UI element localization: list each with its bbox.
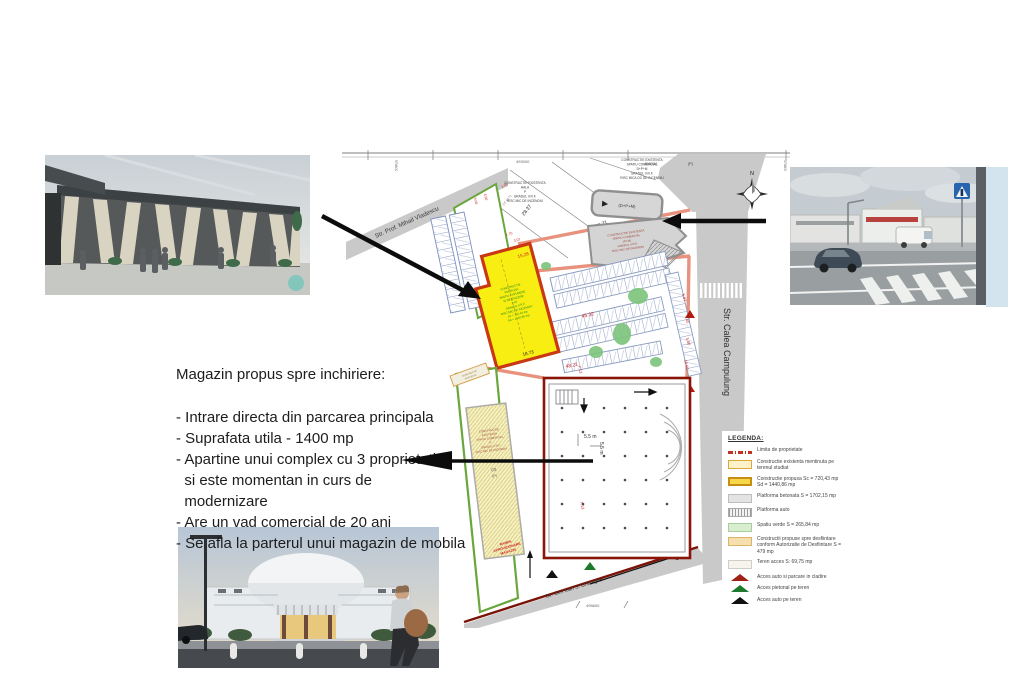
legend-label: Acces auto pe teren [757, 597, 801, 603]
facade-render-image [45, 155, 310, 295]
svg-text:7.13: 7.13 [577, 365, 584, 374]
svg-text:CONSTRUCTIE EXISTENTA: CONSTRUCTIE EXISTENTA [621, 158, 663, 162]
legend-row: Spatiu verde S = 265,84 mp [728, 522, 844, 532]
legend-swatch-property-line [728, 451, 752, 454]
legend-row: Limita de proprietate [728, 447, 844, 454]
street-label-campulung: Str. Calea Campulung [722, 308, 732, 396]
svg-text:D+P+M: D+P+M [637, 167, 648, 171]
north-label: N [750, 171, 754, 177]
svg-text:SPATIU COMERCIAL: SPATIU COMERCIAL [627, 163, 658, 167]
legend-swatch-proposed [728, 477, 752, 486]
legend-swatch-auto-parking-access [728, 574, 752, 581]
svg-text:10.60: 10.60 [683, 359, 690, 371]
watermark-circle [288, 275, 304, 291]
legend-swatch-greenspace [728, 523, 752, 532]
grid-coord: 574600 [394, 160, 398, 171]
dim-label: 5.5 m [598, 442, 604, 455]
legend-row: Platforma betonata S = 1702,15 mp [728, 493, 844, 503]
legend-row: Constructie existenta mentinuta pe teren… [728, 459, 844, 472]
legend-swatch-parking [728, 508, 752, 517]
legend-label: Limita de proprietate [757, 447, 803, 453]
main-store-parcel: 5.5 m 5.5 m [544, 378, 690, 578]
legend-label: Platforma auto [757, 507, 790, 513]
svg-text:RISC MIC/LOC DE INCENDIU: RISC MIC/LOC DE INCENDIU [620, 176, 664, 180]
legend-swatch-pedestrian-access [728, 585, 752, 592]
green-strip-west: CONSTRUCTIE EXISTENTA CONSTRUCTIE EXISTE… [450, 363, 524, 628]
existing-building-dpm: (D+P+M) [591, 190, 663, 220]
legend-label: Constructie existenta mentinuta pe teren… [757, 459, 844, 472]
facade-render-photo [45, 155, 310, 295]
legend-label: Constructii propuse spre desfiintare con… [757, 536, 844, 555]
legend-label: Spatiu verde S = 265,84 mp [757, 522, 819, 528]
legend-swatch-existing [728, 460, 752, 469]
legend-swatch-auto-access [728, 597, 752, 604]
foreground-pole [976, 167, 986, 305]
legend-title: LEGENDA: [728, 435, 844, 442]
svg-text:HALA: HALA [521, 186, 530, 190]
p-label: (P) [688, 162, 693, 166]
pedestrian-access-marker [584, 562, 596, 570]
grid-coord: 574800 [783, 160, 787, 171]
dim-label: 28.37 [521, 204, 534, 218]
legend-row: Constructii propuse spre desfiintare con… [728, 536, 844, 555]
svg-text:P: P [524, 190, 526, 194]
grid-coord: 495600 [586, 603, 600, 608]
slide-canvas: Magazin propus spre inchiriere: - Intrar… [0, 0, 1024, 682]
dim-label: 5.5 m [584, 434, 597, 440]
legend-row: Constructie propusa Sc = 720,43 mp Sd = … [728, 476, 844, 489]
legend-label: Platforma betonata S = 1702,15 mp [757, 493, 836, 499]
legend-swatch-demolition [728, 537, 752, 546]
svg-text:1.70: 1.70 [505, 231, 513, 237]
legend-row: Acces auto pe teren [728, 597, 844, 604]
legend-swatch-access-land [728, 560, 752, 569]
svg-text:GRADUL II R.F.: GRADUL II R.F. [631, 172, 653, 176]
legend-label: Teren acces S: 69,75 mp [757, 559, 812, 565]
legend-swatch-concrete [728, 494, 752, 503]
legend: LEGENDA: Limita de proprietate Construct… [722, 431, 848, 614]
street-label-vladescu: Str. Prof. Mihail Vladescu [374, 205, 441, 240]
svg-text:(P): (P) [492, 474, 497, 479]
street-photo [790, 167, 986, 305]
legend-row: Teren acces S: 69,75 mp [728, 559, 844, 569]
svg-text:CONSTRUCTIE EXISTENTA: CONSTRUCTIE EXISTENTA [504, 181, 546, 185]
legend-row: Platforma auto [728, 507, 844, 517]
legend-row: Acces pietonal pe teren [728, 585, 844, 592]
svg-text:RISC MIC DE INCENDIU: RISC MIC DE INCENDIU [507, 199, 544, 203]
legend-row: Acces auto si parcare in cladire [728, 574, 844, 581]
grid-coord: 493000 [516, 159, 530, 164]
existing-commercial-top-label: CONSTRUCTIE EXISTENTA SPATIU COMERCIAL D… [620, 158, 664, 180]
legend-label: Acces pietonal pe teren [757, 585, 809, 591]
svg-text:GRADUL II R.F.: GRADUL II R.F. [514, 195, 536, 199]
legend-label: Constructie propusa Sc = 720,43 mp Sd = … [757, 476, 844, 489]
photo-edge-strip [986, 167, 1008, 307]
auto-access-marker [546, 570, 558, 578]
legend-label: Acces auto si parcare in cladire [757, 574, 826, 580]
street-photo-image [790, 167, 986, 305]
sidewalk [790, 243, 986, 251]
entrance-block [45, 193, 61, 265]
